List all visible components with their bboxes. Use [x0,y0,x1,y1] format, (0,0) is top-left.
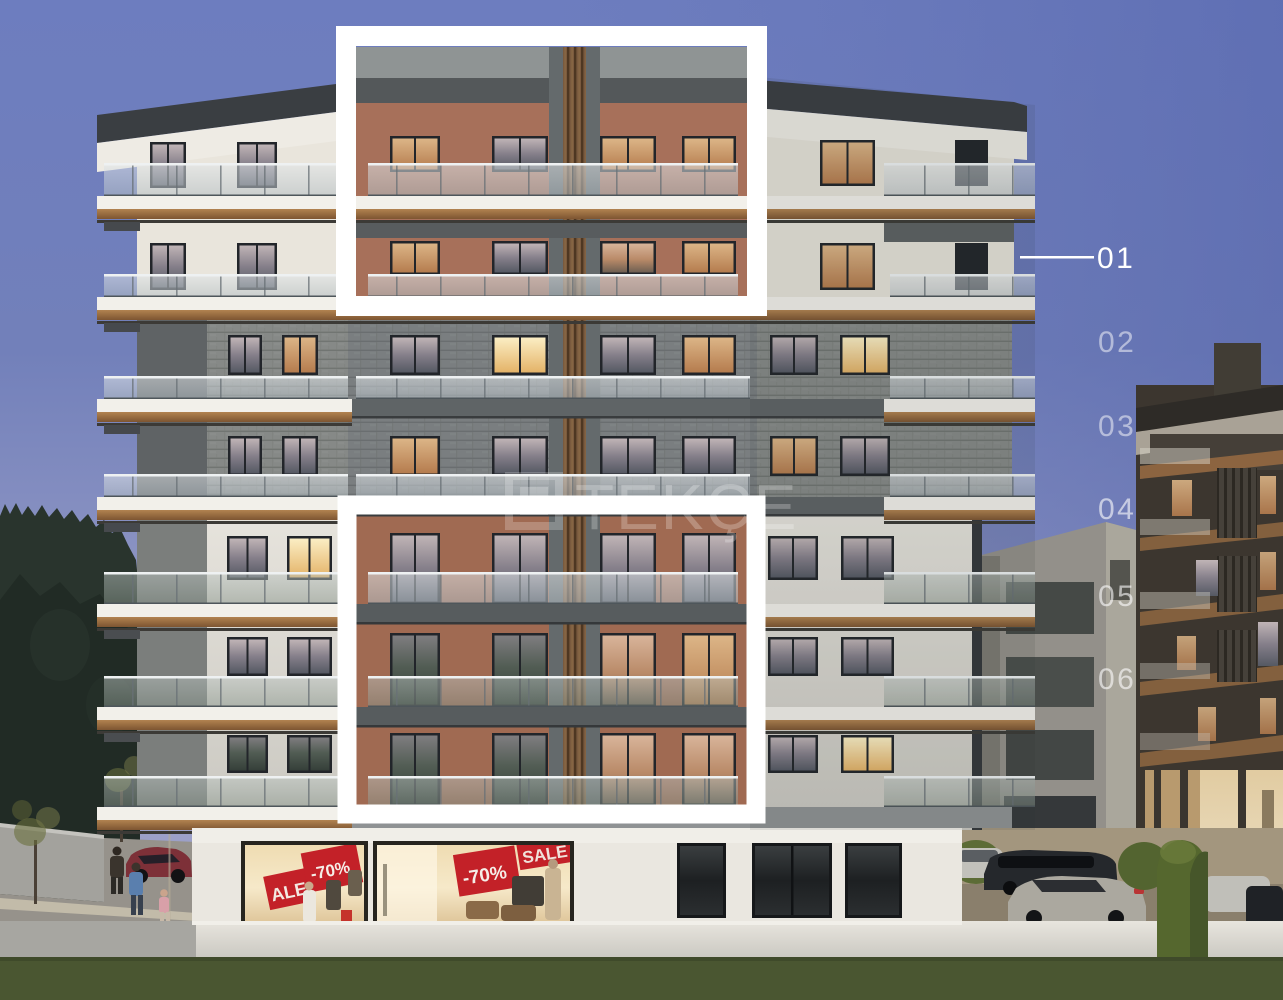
svg-text:04: 04 [1098,493,1136,526]
svg-text:TEKÇE: TEKÇE [575,471,798,543]
svg-text:03: 03 [1098,410,1136,443]
svg-text:06: 06 [1098,663,1136,696]
svg-text:02: 02 [1098,326,1136,359]
svg-text:05: 05 [1098,580,1136,613]
svg-text:01: 01 [1097,242,1135,275]
